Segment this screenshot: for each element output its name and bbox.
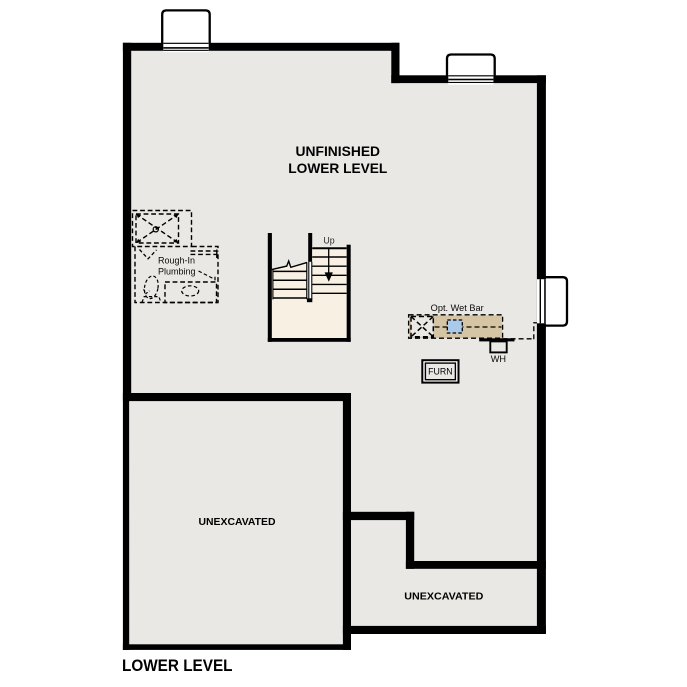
svg-text:UNFINISHED: UNFINISHED <box>296 143 381 159</box>
svg-text:UNEXCAVATED: UNEXCAVATED <box>404 591 483 603</box>
svg-text:LOWER LEVEL: LOWER LEVEL <box>122 656 233 675</box>
svg-text:LOWER LEVEL: LOWER LEVEL <box>288 160 387 176</box>
svg-text:WH: WH <box>491 354 506 364</box>
svg-text:Up: Up <box>323 235 334 245</box>
svg-text:FURN: FURN <box>428 367 452 377</box>
svg-text:Plumbing: Plumbing <box>158 266 196 276</box>
svg-text:Opt. Wet Bar: Opt. Wet Bar <box>431 303 484 313</box>
svg-text:Rough-In: Rough-In <box>158 256 195 266</box>
svg-text:UNEXCAVATED: UNEXCAVATED <box>199 516 276 528</box>
